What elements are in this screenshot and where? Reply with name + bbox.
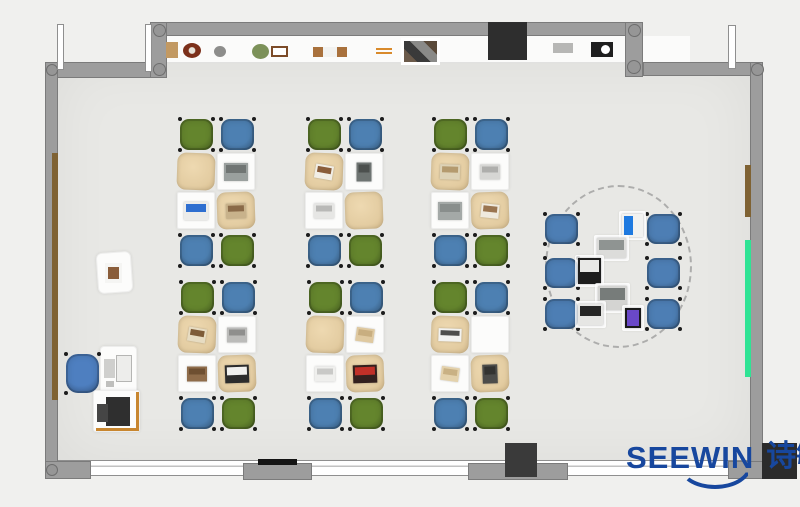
desk-item-screen: [228, 205, 244, 212]
desk-item-screen: [440, 204, 460, 212]
wall-top: [150, 22, 643, 36]
desk-cluster-3-desk-4: [470, 191, 509, 229]
desk-item-screen: [355, 366, 375, 375]
wall-right: [750, 62, 763, 478]
decor-sticks: [376, 48, 392, 54]
desk-cluster-6-chair-blue: [473, 280, 510, 315]
panel-brown-right: [745, 165, 751, 217]
column: [153, 63, 166, 76]
column: [751, 63, 764, 76]
decor-bench: [313, 47, 347, 57]
wall-display: [488, 22, 527, 60]
brand-logo-cjk: 诗敏: [766, 442, 800, 472]
desk-item-laptop: [438, 202, 462, 220]
collab-chair-1: [543, 212, 580, 246]
printer-stand-edge-h: [96, 428, 139, 431]
desk-item-screen: [443, 368, 458, 376]
desk-item-paper: [314, 163, 334, 180]
desk-item-screen: [189, 368, 205, 375]
desk-item-paper: [480, 203, 499, 219]
desk-cluster-6-desk-4: [470, 354, 509, 392]
door-leaf-1: [57, 24, 64, 70]
laptop-white-screen: [580, 306, 601, 316]
desk-cluster-4-desk-1: [177, 315, 216, 353]
desk-cluster-6-desk-1: [430, 315, 469, 353]
teacher-monitor-2: [117, 356, 131, 381]
desk-item-laptop: [225, 364, 250, 383]
desk-cluster-1-desk-3: [177, 192, 215, 229]
printer-body: [106, 397, 130, 426]
desk-cluster-4-desk-4: [217, 354, 256, 392]
desk-cluster-3-chair-green: [473, 233, 510, 268]
brand-logo-swoosh: [678, 465, 752, 489]
column: [628, 24, 641, 37]
desk-item-screen: [190, 328, 205, 337]
brand-logo-latin-wrap: SEEWIN: [626, 442, 754, 473]
desk-item-tablet: [482, 364, 498, 384]
desk-cluster-5-chair-green: [348, 396, 385, 431]
decor-plant: [252, 44, 269, 59]
desk-item-tablet: [357, 162, 372, 181]
desk-cluster-2-chair-blue: [347, 117, 384, 152]
desk-cluster-2-chair-green: [306, 117, 343, 152]
decor-tray: [553, 43, 573, 53]
desk-item-paper: [440, 365, 460, 381]
desk-cluster-1-desk-1: [176, 152, 215, 190]
decor-wood-block: [166, 42, 178, 58]
desk-cluster-1-desk-4: [216, 191, 255, 229]
desk-cluster-5-desk-1: [305, 315, 344, 353]
desk-item-book: [226, 203, 247, 219]
pier-bottom-2: [243, 463, 312, 480]
teacher-office-chair: [64, 352, 101, 395]
laptop-white: [578, 304, 603, 325]
desk-item-screen: [317, 165, 332, 174]
desk-cluster-6-chair-green: [432, 280, 469, 315]
classroom-floorplan: SEEWIN 诗敏: [0, 0, 800, 507]
desk-item-book: [315, 366, 335, 381]
board-green-right: [745, 240, 751, 377]
wall-top-right: [643, 62, 763, 76]
desk-item-screen: [483, 205, 498, 213]
desk-cluster-3-chair-green: [432, 117, 469, 152]
desk-cluster-5-chair-green: [307, 280, 344, 315]
desk-item-book: [480, 164, 500, 179]
teacher-desk-item: [106, 381, 114, 387]
decor-collage: [404, 41, 437, 62]
desk-cluster-1-chair-blue: [178, 233, 215, 268]
desk-item-laptop: [353, 364, 378, 383]
decor-frame: [271, 46, 288, 57]
column: [46, 464, 58, 476]
desk-item-screen: [317, 368, 333, 375]
clock-face: [601, 45, 610, 54]
desk-cluster-3-chair-blue: [432, 233, 469, 268]
desk-cluster-2-desk-1: [304, 152, 343, 190]
desk-cluster-5-desk-4: [345, 354, 384, 392]
desk-cluster-4-chair-blue: [179, 396, 216, 431]
collab-chair-4: [645, 212, 682, 246]
desk-cluster-4-desk-2: [218, 316, 256, 353]
desk-cluster-5-chair-blue: [307, 396, 344, 431]
desk-cluster-5-desk-3: [306, 355, 344, 392]
door-leaf-2: [145, 24, 152, 72]
desk-cluster-1-desk-2: [217, 153, 255, 190]
desk-item-keyboard: [438, 328, 461, 342]
desk-cluster-2-chair-blue: [306, 233, 343, 268]
desk-item-screen: [227, 366, 247, 375]
decor-wreath: [183, 43, 201, 58]
desk-item-screen: [440, 330, 459, 337]
door-leaf-3: [728, 25, 736, 69]
desk-item-screen: [359, 164, 370, 173]
smartphone: [625, 308, 641, 328]
laptop-gray-2-screen: [600, 288, 625, 300]
desk-cluster-5-chair-blue: [348, 280, 385, 315]
desk-cluster-3-chair-blue: [473, 117, 510, 152]
door-panel-brown-left: [52, 153, 58, 400]
desk-cluster-3-desk-1: [430, 152, 469, 190]
block-bottom-mid: [505, 443, 537, 477]
laptop-gray-1-screen: [599, 240, 624, 250]
side-item-center: [108, 267, 119, 279]
desk-cluster-4-chair-green: [179, 280, 216, 315]
desk-cluster-4-chair-green: [220, 396, 257, 431]
desk-item-screen: [316, 205, 332, 212]
desk-cluster-2-chair-green: [347, 233, 384, 268]
laptop-black: [578, 258, 601, 284]
tablet-blue-screen: [624, 216, 633, 235]
desk-item-screen: [484, 366, 495, 375]
desk-cluster-6-chair-blue: [432, 396, 469, 431]
desk-cluster-3-desk-2: [471, 153, 509, 190]
top-right-alcove: [643, 36, 690, 63]
desk-item-paper: [187, 326, 207, 343]
desk-item-screen: [358, 329, 373, 337]
laptop-black-screen: [580, 260, 599, 272]
desk-cluster-4-chair-blue: [220, 280, 257, 315]
desk-cluster-6-desk-2: [471, 316, 509, 353]
desk-cluster-2-desk-3: [305, 192, 343, 229]
desk-item-screen: [482, 166, 498, 173]
desk-item-screen: [442, 166, 458, 173]
decor-clock: [591, 42, 613, 57]
desk-item-book: [227, 327, 247, 342]
desk-cluster-1-chair-green: [178, 117, 215, 152]
desk-item-laptop: [224, 163, 248, 181]
desk-cluster-2-desk-2: [345, 153, 383, 190]
printer-side: [97, 404, 108, 422]
desk-cluster-3-desk-3: [431, 192, 469, 229]
desk-cluster-4-desk-3: [178, 355, 216, 392]
desk-item-screen: [229, 329, 245, 336]
column: [627, 60, 641, 74]
desk-item-book: [440, 164, 461, 180]
column: [153, 24, 166, 37]
desk-item-screen: [226, 165, 246, 173]
desk-cluster-5-desk-2: [346, 316, 384, 353]
desk-item-laptop: [184, 202, 208, 220]
desk-item-screen: [186, 204, 206, 212]
tablet-blue: [622, 214, 643, 237]
desk-item-book: [187, 366, 207, 381]
desk-cluster-1-chair-green: [219, 233, 256, 268]
collab-chair-6: [645, 297, 682, 331]
desk-item-book: [314, 203, 334, 218]
decor-stone: [214, 46, 226, 57]
teacher-monitor-1: [104, 359, 115, 378]
desk-cluster-6-desk-3: [431, 355, 469, 392]
printer-stand-edge-v: [136, 392, 139, 431]
desk-item-paper: [355, 326, 375, 342]
teacher-side-table-item: [105, 263, 122, 283]
smartphone-screen: [627, 310, 639, 326]
collab-chair-5: [645, 256, 682, 290]
desk-cluster-6-chair-green: [473, 396, 510, 431]
desk-cluster-1-chair-blue: [219, 117, 256, 152]
brand-logo: SEEWIN 诗敏: [626, 442, 800, 473]
desk-cluster-2-desk-4: [344, 191, 383, 229]
threshold-bar: [258, 459, 297, 465]
